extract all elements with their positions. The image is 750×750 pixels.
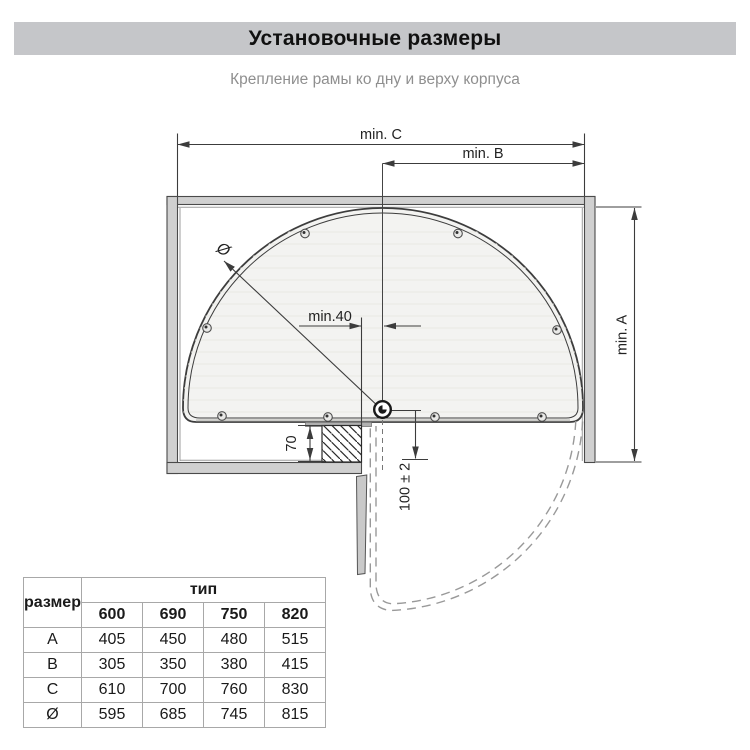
hatched-post bbox=[322, 426, 362, 463]
cell: 380 bbox=[204, 653, 265, 678]
table-row: A 405 450 480 515 bbox=[24, 628, 326, 653]
dim-label-min-b: min. B bbox=[462, 146, 503, 162]
dimension-70 bbox=[298, 426, 325, 462]
cell: 405 bbox=[82, 628, 143, 653]
cell: 830 bbox=[265, 678, 326, 703]
cell: 305 bbox=[82, 653, 143, 678]
table-row: C 610 700 760 830 bbox=[24, 678, 326, 703]
cabinet-right-wall bbox=[585, 197, 596, 463]
cell: 685 bbox=[143, 703, 204, 728]
door-swing-path bbox=[370, 421, 582, 611]
cabinet-bottom-wall bbox=[167, 463, 362, 474]
cell: 595 bbox=[82, 703, 143, 728]
pivot-pin bbox=[374, 401, 391, 418]
table-type-750: 750 bbox=[204, 603, 265, 628]
cell: 480 bbox=[204, 628, 265, 653]
row-label-diameter: Ø bbox=[24, 703, 82, 728]
row-label-c: C bbox=[24, 678, 82, 703]
table-type-600: 600 bbox=[82, 603, 143, 628]
dim-label-diameter: Ø bbox=[213, 239, 234, 261]
cell: 515 bbox=[265, 628, 326, 653]
cell: 760 bbox=[204, 678, 265, 703]
cell: 350 bbox=[143, 653, 204, 678]
table-row: B 305 350 380 415 bbox=[24, 653, 326, 678]
door-panel bbox=[357, 475, 367, 575]
cell: 450 bbox=[143, 628, 204, 653]
cell: 745 bbox=[204, 703, 265, 728]
row-label-a: A bbox=[24, 628, 82, 653]
dim-label-70: 70 bbox=[284, 435, 300, 451]
cell: 610 bbox=[82, 678, 143, 703]
sizes-table: размер тип 600 690 750 820 A 405 450 480… bbox=[23, 577, 326, 728]
row-label-b: B bbox=[24, 653, 82, 678]
cabinet-top-wall bbox=[167, 197, 595, 205]
table-type-690: 690 bbox=[143, 603, 204, 628]
table-header-size: размер bbox=[24, 578, 82, 628]
dim-label-100: 100 ± 2 bbox=[398, 463, 414, 511]
cell: 415 bbox=[265, 653, 326, 678]
cabinet-left-wall bbox=[167, 197, 178, 474]
dim-label-min-a: min. A bbox=[615, 315, 631, 356]
dim-label-min-40: min.40 bbox=[308, 309, 352, 325]
table-header-type: тип bbox=[82, 578, 326, 603]
table-type-820: 820 bbox=[265, 603, 326, 628]
dim-label-min-c: min. C bbox=[360, 127, 402, 143]
table-row: Ø 595 685 745 815 bbox=[24, 703, 326, 728]
page: Установочные размеры Крепление рамы ко д… bbox=[0, 0, 750, 750]
cell: 815 bbox=[265, 703, 326, 728]
cell: 700 bbox=[143, 678, 204, 703]
